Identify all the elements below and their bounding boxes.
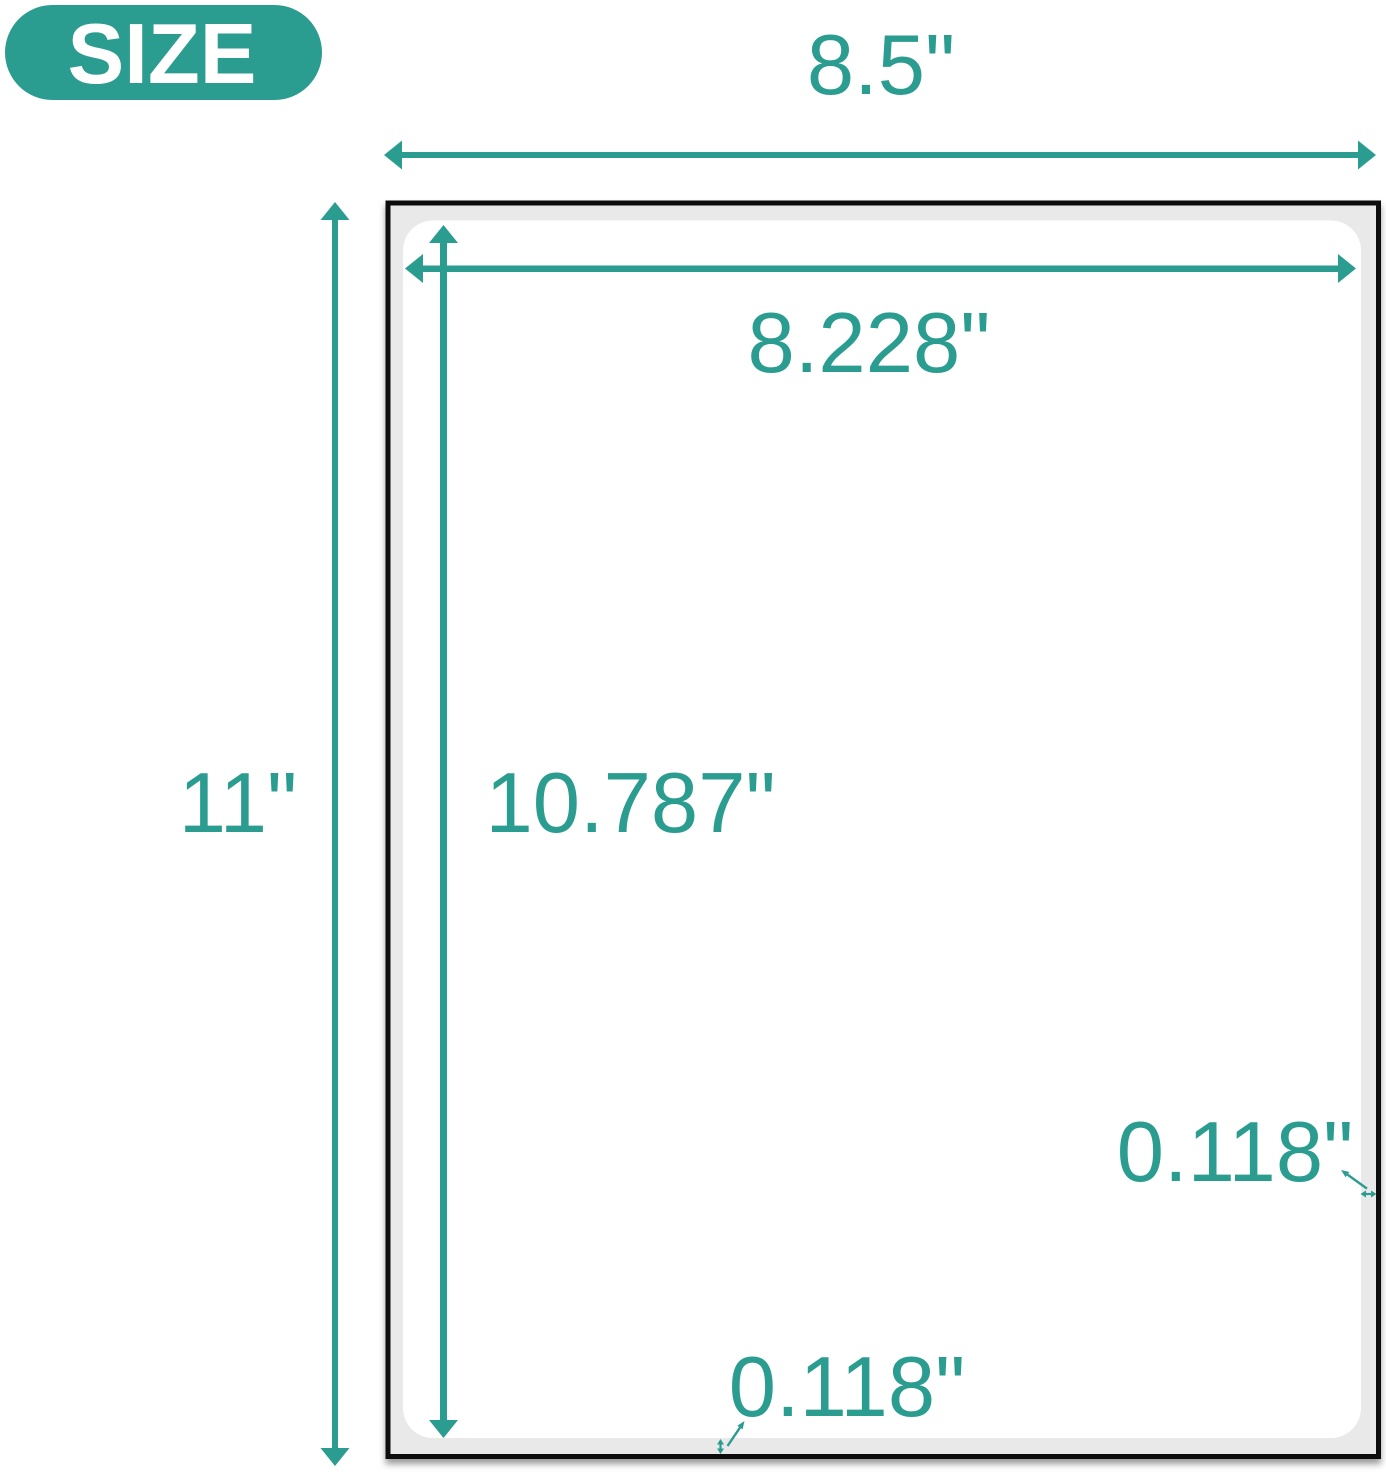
- svg-text:SIZE: SIZE: [68, 7, 257, 102]
- svg-text:8.228": 8.228": [748, 296, 991, 391]
- svg-text:8.5": 8.5": [807, 18, 955, 113]
- svg-text:0.118": 0.118": [1117, 1105, 1354, 1200]
- svg-text:11": 11": [179, 756, 297, 851]
- svg-text:10.787": 10.787": [486, 756, 776, 851]
- svg-text:0.118": 0.118": [729, 1340, 966, 1435]
